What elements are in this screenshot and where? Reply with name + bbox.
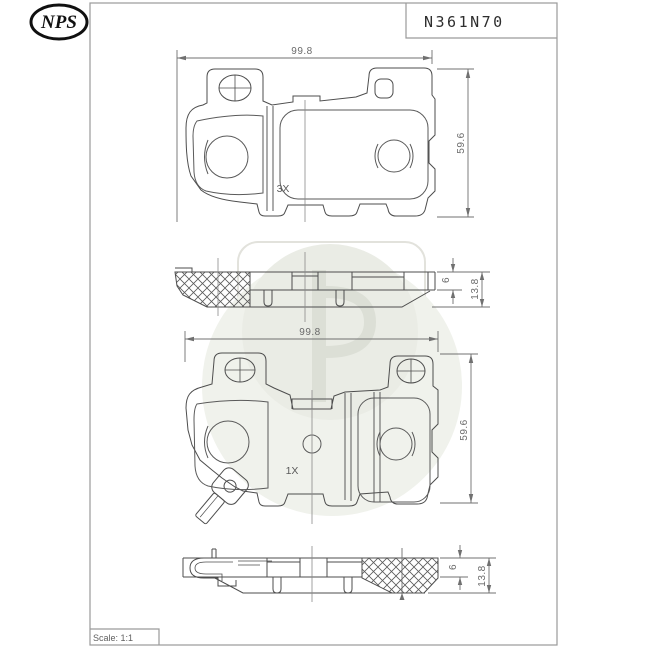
dim-height-top: 59.6 <box>456 132 467 153</box>
dim-plate-bottom: 6 <box>448 564 459 570</box>
drawing-sheet: N361N70 Scale: 1:1 NPS 99.8 59.6 <box>0 0 650 650</box>
nps-logo: NPS <box>31 5 87 39</box>
qty-label-top: 3X <box>277 183 290 195</box>
view-profile-bottom <box>183 546 438 602</box>
dim-plate-top: 6 <box>441 277 452 283</box>
technical-drawing-svg: N361N70 Scale: 1:1 NPS 99.8 59.6 <box>0 0 650 650</box>
view-pad-top <box>186 68 435 222</box>
dim-height-bottom: 59.6 <box>459 419 470 440</box>
dim-total-bottom: 13.8 <box>477 565 488 586</box>
dim-total-top: 13.8 <box>470 278 481 299</box>
nps-logo-text: NPS <box>40 12 77 33</box>
qty-label-bottom: 1X <box>286 465 299 477</box>
part-number: N361N70 <box>424 13 505 31</box>
dim-width-top: 99.8 <box>291 46 312 57</box>
scale-label: Scale: 1:1 <box>93 633 133 643</box>
dim-width-bottom: 99.8 <box>299 327 320 338</box>
